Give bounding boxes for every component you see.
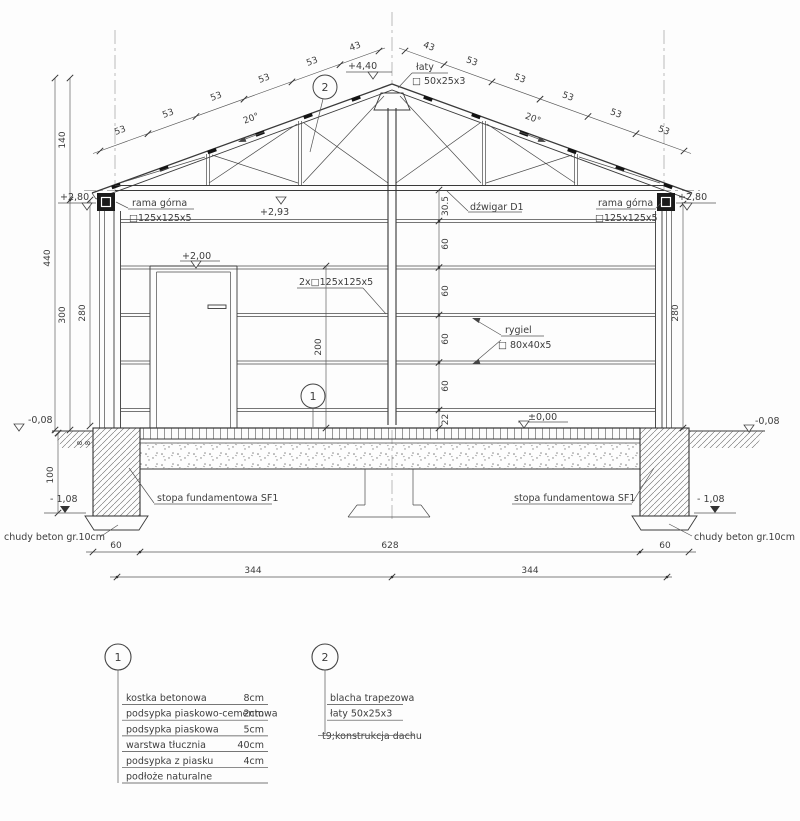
legend1-number: 1 <box>115 651 122 664</box>
door-handle <box>208 305 226 309</box>
building-cross-section-drawing: 440 140 300 280 100 8 8 280 30.5 60 60 6… <box>0 0 800 821</box>
ridge-cap <box>374 93 410 110</box>
footing-left <box>93 428 140 516</box>
purlin-dots <box>111 95 673 189</box>
detail-marker-2-number: 2 <box>322 81 329 94</box>
dzwigar-label: dźwigar D1 <box>470 202 524 213</box>
level-floor: ±0,00 <box>528 412 557 423</box>
legend1-row-label: podsypka z piasku <box>126 756 213 767</box>
eave-frame-left <box>97 193 115 211</box>
walls <box>100 211 672 428</box>
rama-gorna-left-label: rama górna <box>132 198 187 209</box>
roof-dim-53: 53 <box>209 90 223 103</box>
eave-frame-right <box>657 193 675 211</box>
level-ground-right: -0,08 <box>755 416 780 427</box>
rama-gorna-left-profile: □125x125x5 <box>129 213 192 224</box>
legend1-row-value: 40cm <box>237 740 264 751</box>
legend2-number: 2 <box>322 651 329 664</box>
level-eave-right: +2,80 <box>678 192 707 203</box>
rama-gorna-right-profile: □125x125x5 <box>595 213 658 224</box>
stopa-right-label: stopa fundamentowa SF1 <box>514 493 635 504</box>
chudy-beton-left-label: chudy beton gr.10cm <box>4 532 105 543</box>
detail-marker-1: 1 <box>301 384 325 427</box>
roof-dim-53: 53 <box>513 72 527 85</box>
chudy-beton-right-label: chudy beton gr.10cm <box>694 532 795 543</box>
legend1-row-value: 8cm <box>243 693 264 704</box>
dim-60-2: 60 <box>441 285 451 297</box>
laty-profile-label: □ 50x25x3 <box>412 76 465 87</box>
center-pedestal <box>348 469 430 517</box>
ground-hatch-right <box>689 431 765 448</box>
level-eave-left: +2,80 <box>60 192 89 203</box>
dim-8b: 8 <box>84 441 92 445</box>
door <box>150 266 237 428</box>
roof-dim-53: 53 <box>161 107 175 120</box>
roof-dim-53: 53 <box>657 124 671 137</box>
column-label: 2x□125x125x5 <box>299 277 373 288</box>
dim-8a: 8 <box>76 441 84 445</box>
roof-dim-53: 53 <box>113 124 127 137</box>
dim-22: 22 <box>441 414 451 425</box>
dim-280-left: 280 <box>78 304 88 321</box>
legend1-row-value: 4cm <box>243 756 264 767</box>
roof-angle-right: 20° <box>523 112 541 127</box>
dim-60-4: 60 <box>441 380 451 392</box>
legend1-row-label: podsypka piaskowa <box>126 724 219 735</box>
legend1-row-label: warstwa tłucznia <box>126 740 206 751</box>
roof-angle-left: 20° <box>242 112 260 127</box>
paver-layer <box>140 428 640 439</box>
legend-floor-layers: 1 kostka betonowa 8cm podsypka piaskowo-… <box>105 644 278 783</box>
detail-marker-2: 2 <box>310 75 337 152</box>
rama-gorna-right-label: rama górna <box>598 198 653 209</box>
level-ground-left: -0,08 <box>28 415 53 426</box>
dim-60-1: 60 <box>441 238 451 250</box>
center-column <box>388 108 396 425</box>
rygiel-label: rygiel <box>505 325 532 336</box>
dim-628: 628 <box>381 541 398 551</box>
detail-marker-1-number: 1 <box>310 390 317 403</box>
gravel-layer <box>140 443 640 469</box>
legend1-row-value: 5cm <box>243 724 264 735</box>
legend2-row-struck: t9;konstrukcja dachu <box>322 731 422 742</box>
roof-dim-53: 53 <box>305 55 319 68</box>
dim-30-5: 30.5 <box>441 196 451 216</box>
roof-dim-53: 53 <box>465 55 479 68</box>
roof-dim-53: 53 <box>561 90 575 103</box>
roof-dim-43: 43 <box>422 40 436 53</box>
legend-roof-layers: 2 blacha trapezowa łaty 50x25x3 t9;konst… <box>312 644 422 742</box>
dim-344-left: 344 <box>244 566 261 576</box>
roof-dim-43: 43 <box>348 40 362 53</box>
technical-drawing-page: 440 140 300 280 100 8 8 280 30.5 60 60 6… <box>0 0 800 821</box>
dim-200-door: 200 <box>314 338 324 355</box>
bottom-dimensions: 60 628 60 344 344 <box>86 541 696 580</box>
dim-60-3: 60 <box>441 333 451 345</box>
level-door-top: +2,00 <box>182 251 211 262</box>
legend1-row-label: podłoże naturalne <box>126 772 212 783</box>
laty-label: łaty <box>416 62 434 73</box>
lean-concrete-pad-left <box>85 516 148 530</box>
roof-dim-53: 53 <box>257 72 271 85</box>
dim-140: 140 <box>58 131 68 148</box>
stopa-left-label: stopa fundamentowa SF1 <box>157 493 278 504</box>
level-truss-bottom: +2,93 <box>260 207 289 218</box>
legend1-row-label: kostka betonowa <box>126 693 207 704</box>
dim-280-right: 280 <box>671 304 681 321</box>
dim-440: 440 <box>43 249 53 266</box>
dim-60-right: 60 <box>659 541 671 551</box>
dim-300: 300 <box>58 306 68 323</box>
dim-344-right: 344 <box>521 566 538 576</box>
dim-60-left: 60 <box>110 541 122 551</box>
level-footing-left: - 1,08 <box>50 494 78 505</box>
legend2-row: łaty 50x25x3 <box>330 709 392 720</box>
dim-100: 100 <box>46 466 56 483</box>
roof-dim-53: 53 <box>609 107 623 120</box>
roof <box>92 84 692 211</box>
level-footing-right: - 1,08 <box>697 494 725 505</box>
legend2-row: blacha trapezowa <box>330 693 414 704</box>
legend1-row-value: 2cm <box>243 709 264 720</box>
level-ridge: +4,40 <box>348 61 377 72</box>
foundation <box>52 428 765 530</box>
footing-right <box>640 428 689 516</box>
rygiel-profile-label: □ 80x40x5 <box>498 340 551 351</box>
lean-concrete-pad-right <box>632 516 697 530</box>
